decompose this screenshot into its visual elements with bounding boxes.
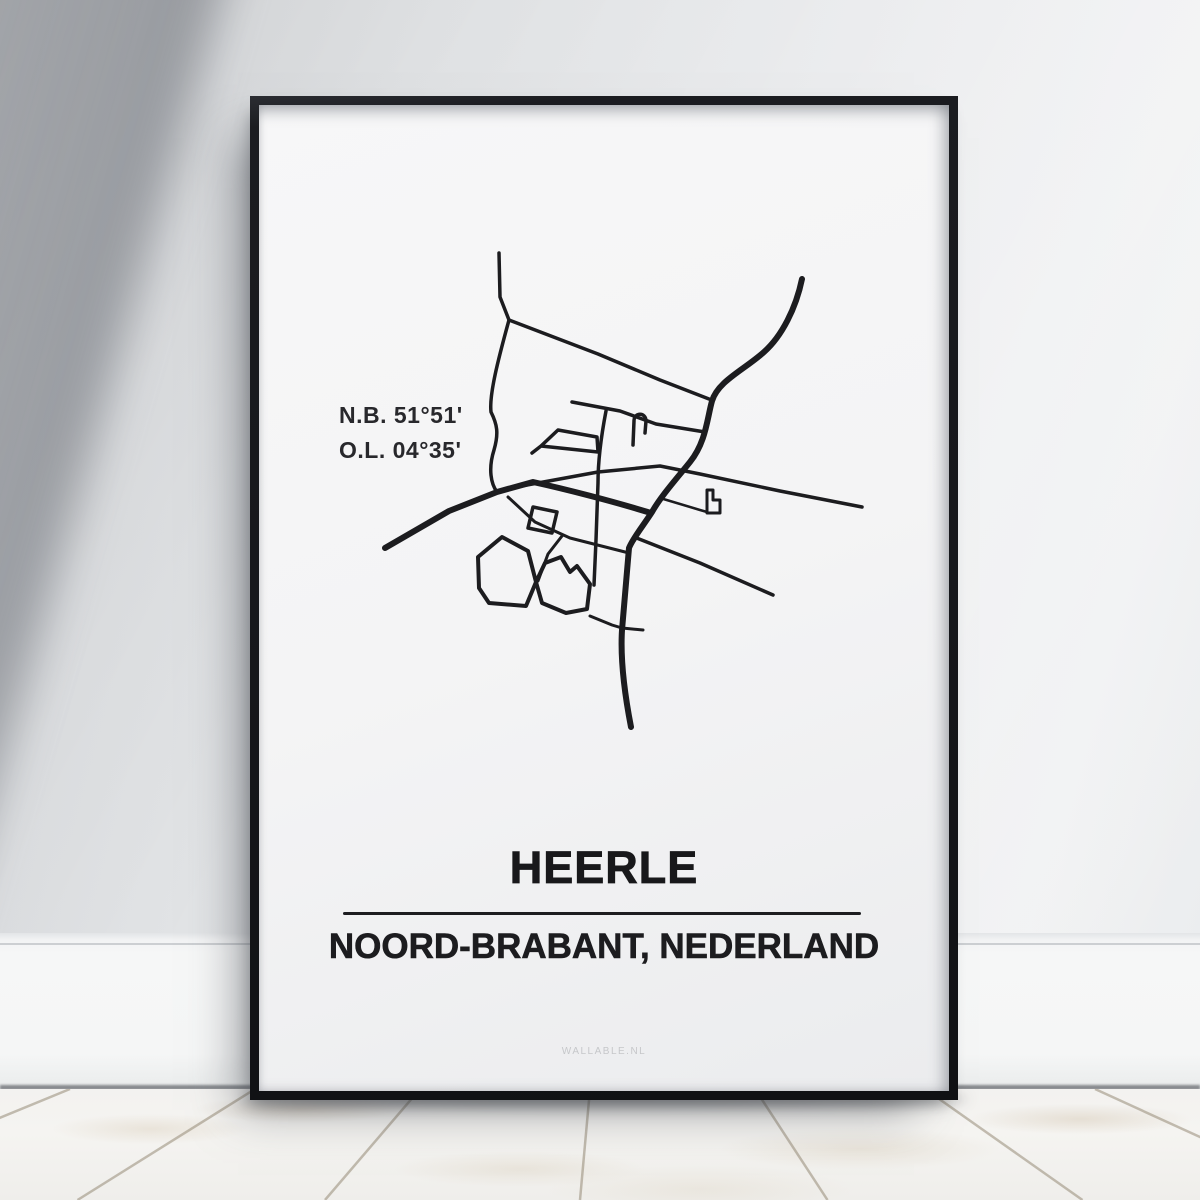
longitude-text: O.L. 04°35' (339, 433, 463, 468)
poster-title: HEERLE (259, 842, 949, 894)
brand-watermark: WALLABLE.NL (259, 1046, 949, 1057)
title-divider-line (343, 912, 861, 915)
product-photo-scene: N.B. 51°51' O.L. 04°35' HEERLE NOORD-BRA… (0, 0, 1200, 1200)
poster-subtitle: NOORD-BRABANT, NEDERLAND (259, 927, 949, 967)
latitude-text: N.B. 51°51' (339, 398, 463, 433)
coordinates-block: N.B. 51°51' O.L. 04°35' (339, 398, 463, 467)
